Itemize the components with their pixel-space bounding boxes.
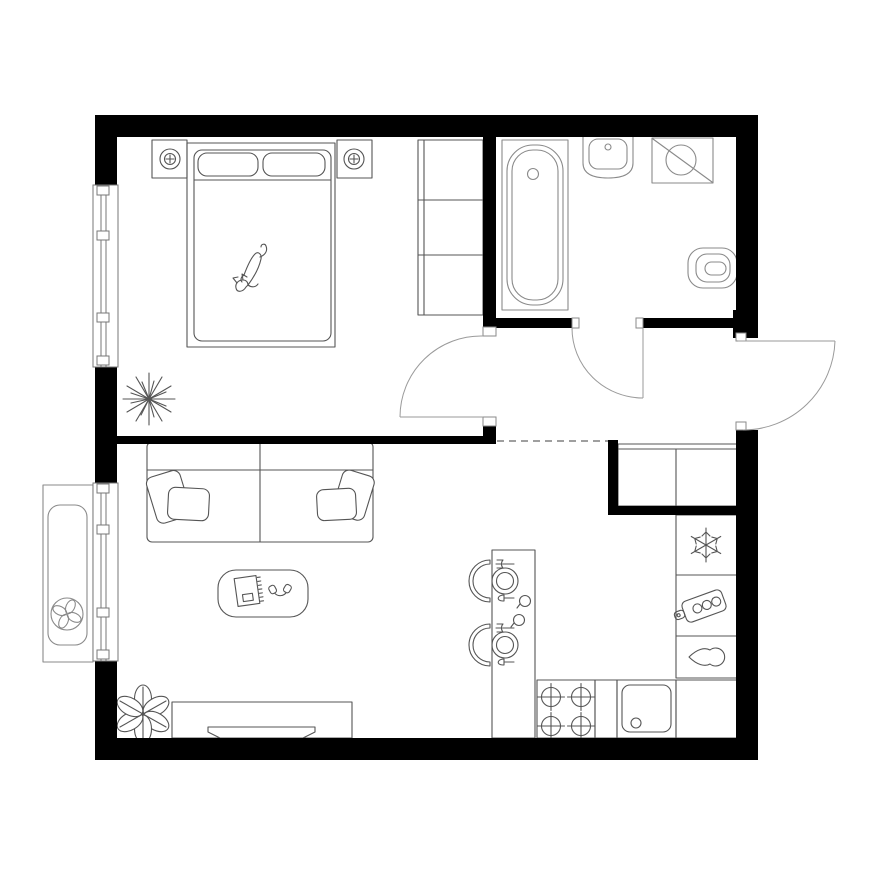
fork-icon [496, 624, 514, 632]
bathtub [502, 140, 568, 310]
wall-right [736, 430, 758, 760]
tv-stand [172, 702, 352, 738]
nightstand-right [337, 140, 372, 178]
bed-pillow-right [263, 153, 325, 176]
door-swing-arc [572, 328, 643, 398]
tap [605, 144, 611, 150]
cutting-board-icon [671, 588, 727, 626]
living-room [114, 442, 376, 743]
knife-icon [498, 659, 514, 665]
door-jamb [572, 318, 579, 328]
wall-top [95, 115, 758, 137]
wall-right [736, 115, 758, 333]
bedroom-window [93, 185, 118, 367]
counter-section [595, 680, 617, 738]
snowflake-icon [689, 528, 722, 562]
stove [537, 680, 595, 740]
lamp-icon [344, 149, 364, 169]
burner-icon [538, 713, 565, 740]
leafy-plant [114, 685, 173, 743]
kitchen-sink [617, 680, 676, 738]
wall-bottom [95, 738, 758, 760]
bedroom [123, 140, 483, 425]
worktop-cabinet [676, 575, 737, 636]
bar-chair [469, 560, 490, 602]
wall-left [95, 115, 117, 185]
cabinet [676, 636, 737, 678]
place-setting [492, 560, 518, 601]
burner-icon [568, 713, 595, 740]
headphones [268, 584, 292, 596]
water-drop-icon [689, 648, 725, 666]
sofa [145, 442, 376, 542]
bathroom-door [572, 318, 643, 398]
nightstand-left [152, 140, 187, 178]
sink-drain [631, 718, 641, 728]
balcony [43, 485, 93, 662]
plate [492, 632, 518, 658]
bar-chair [469, 624, 490, 666]
cat [233, 244, 267, 291]
plate [492, 568, 518, 594]
glass [517, 596, 531, 609]
notebook [234, 575, 264, 606]
mattress [194, 150, 331, 341]
bed-pillow-left [198, 153, 258, 176]
counter-section [676, 680, 737, 738]
wash-basin [583, 135, 633, 178]
place-setting [492, 624, 518, 665]
toilet [688, 248, 737, 288]
lamp-icon [160, 149, 180, 169]
wardrobe [418, 140, 483, 315]
built-in-closet [618, 444, 737, 506]
wall-bathroom-bottom [643, 318, 737, 328]
knife-icon [498, 595, 514, 601]
burner-icon [538, 684, 565, 711]
wall-left [95, 367, 117, 483]
door-jamb [736, 333, 746, 341]
bedroom-door [400, 327, 496, 426]
burner-icon [568, 684, 595, 711]
door-jamb [636, 318, 643, 328]
floor-plan-drawing [0, 0, 880, 880]
wall-bedroom-bathroom [483, 137, 496, 327]
door-jamb [483, 327, 496, 336]
wall-bathroom-bottom [496, 318, 572, 328]
wall-closet-left [608, 440, 618, 515]
door-swing-arc [400, 336, 483, 417]
bathroom [502, 135, 737, 310]
glass [511, 615, 525, 628]
floor-plan [0, 0, 880, 880]
wall-bedroom-living [117, 436, 496, 444]
coffee-table [218, 570, 308, 617]
door-jamb [736, 422, 746, 430]
fork-icon [496, 560, 514, 568]
door-jamb [483, 417, 496, 426]
sofa-pillow [167, 487, 210, 521]
tv [208, 727, 315, 738]
door-swing-arc [743, 341, 835, 430]
drain [528, 169, 539, 180]
wall-left [95, 661, 117, 760]
sofa-pillow [316, 488, 357, 521]
kitchen-column [671, 515, 737, 678]
living-room-window [93, 483, 118, 661]
spiky-plant [123, 373, 175, 425]
fan-icon [51, 598, 83, 630]
washing-machine-icon [652, 138, 713, 183]
entrance-door [736, 333, 835, 430]
kitchen [469, 515, 737, 740]
wall-closet-bottom [608, 506, 737, 515]
